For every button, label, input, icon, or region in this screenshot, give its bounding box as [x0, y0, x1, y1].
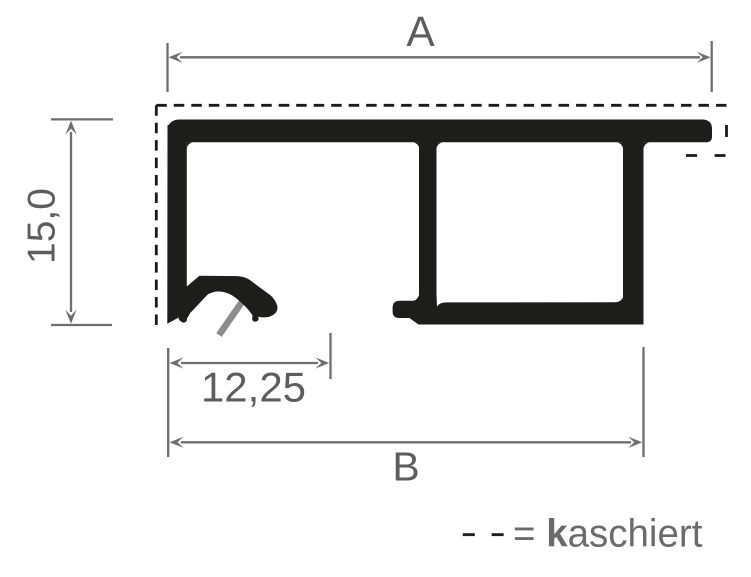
svg-text:= kaschiert: = kaschiert	[513, 512, 703, 555]
svg-text:A: A	[406, 9, 435, 56]
svg-text:12,25: 12,25	[201, 363, 306, 410]
svg-text:B: B	[392, 443, 419, 489]
svg-text:15,0: 15,0	[21, 188, 64, 264]
